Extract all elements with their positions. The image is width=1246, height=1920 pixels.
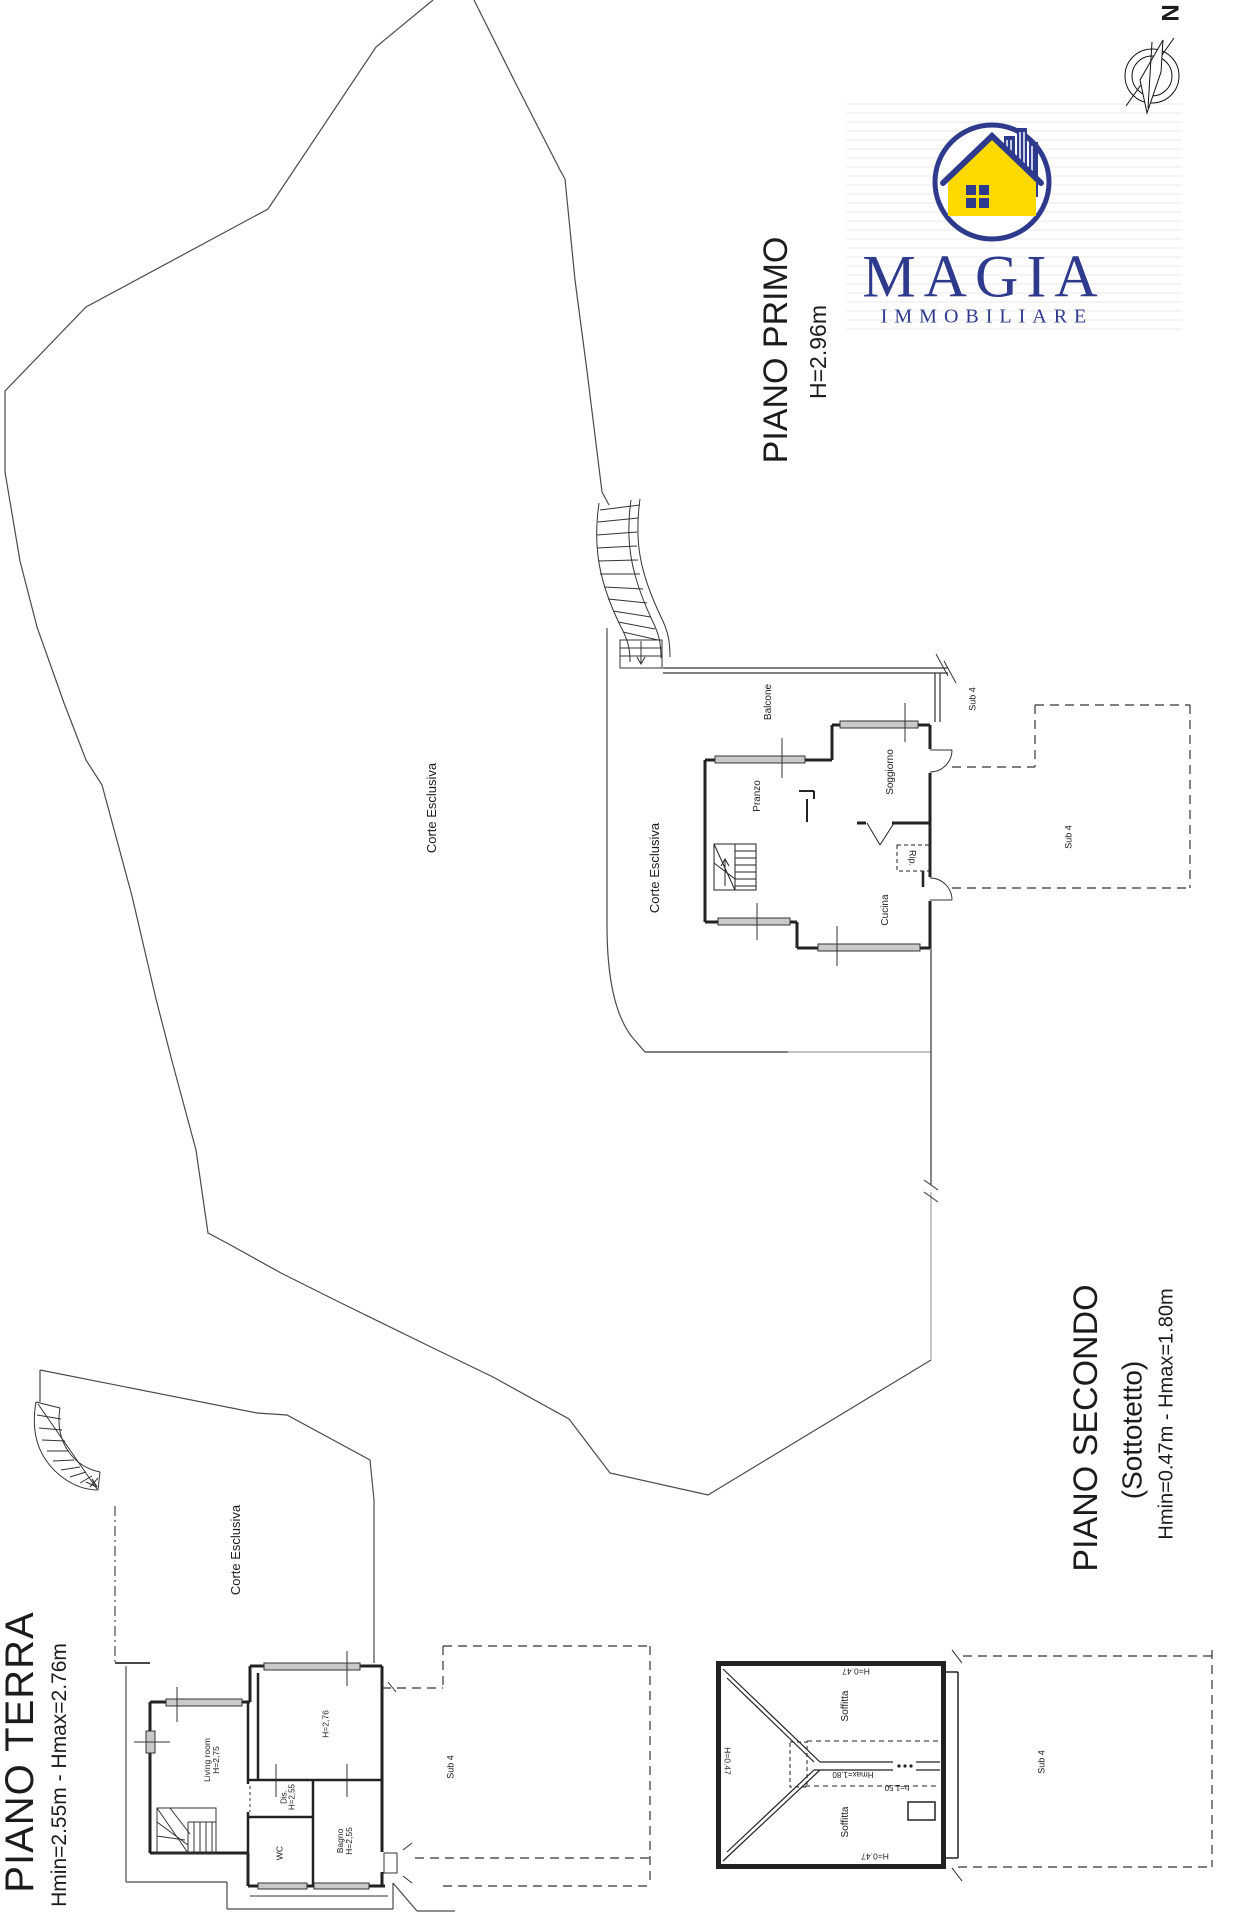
dis-label: Dis. H=2,55 xyxy=(281,1784,298,1810)
external-stair-primo xyxy=(597,499,670,668)
corte-esclusiva-label-2: Corte Esclusiva xyxy=(648,823,662,913)
h047-top-label: H=0.47 xyxy=(842,1667,870,1676)
terra-sub4-dashed xyxy=(382,1646,650,1886)
compass-icon xyxy=(1125,38,1179,113)
logo-subbrand: IMMOBILIARE xyxy=(881,307,1094,328)
bagno-height: H=2,55 xyxy=(344,1827,354,1855)
balcone-label: Balcone xyxy=(764,684,775,720)
big-room-height: H=2,76 xyxy=(322,1710,331,1738)
terra-interior xyxy=(248,1673,382,1886)
terra-title: PIANO TERRA xyxy=(0,1611,41,1892)
hmax-label: Hmax=1.80 xyxy=(832,1770,873,1778)
terra-winder-stair xyxy=(157,1808,216,1853)
floorplan-sheet: N MAGIA IMMOBILIARE PIANO PRIMO H=2.96m … xyxy=(0,0,1246,1920)
primo-interior xyxy=(714,791,930,890)
logo-brand: MAGIA xyxy=(862,246,1105,309)
secondo-house xyxy=(719,1650,963,1881)
living-room-label: Living room H=2,75 xyxy=(203,1738,221,1782)
soggiorno-label: Soggiorno xyxy=(886,749,897,795)
h047-bottom-label: H=0.47 xyxy=(861,1852,889,1861)
external-stair-terra xyxy=(34,1402,100,1490)
rip-label: Rip. xyxy=(907,850,916,866)
terra-windows xyxy=(134,1651,388,1896)
primo-windows xyxy=(715,703,920,966)
sub4-top-label: Sub 4 xyxy=(968,687,977,711)
bagno-label: Bagno H=2,55 xyxy=(336,1827,354,1855)
primo-sub4-dashed xyxy=(952,705,1190,888)
logo-emblem xyxy=(935,125,1049,239)
balcony-fence xyxy=(663,654,956,722)
secondo-height-note: Hmin=0.47m - Hmax=1.80m xyxy=(1157,1288,1178,1539)
corte-esclusiva-label-3: Corte Esclusiva xyxy=(229,1505,243,1595)
soffitta-bottom-label: Soffitta xyxy=(841,1807,852,1838)
pranzo-label: Pranzo xyxy=(753,780,764,812)
living-room-height: H=2,75 xyxy=(211,1746,221,1774)
h150-label: h=1.50 xyxy=(885,1783,910,1791)
secondo-title: PIANO SECONDO xyxy=(1069,1284,1105,1571)
cucina-label: Cucina xyxy=(881,894,892,925)
secondo-sub4-dashed xyxy=(958,1650,1212,1867)
primo-title: PIANO PRIMO xyxy=(759,237,795,464)
terra-height-note: Hmin=2.55m - Hmax=2.76m xyxy=(49,1643,71,1907)
sub4-right-label: Sub 4 xyxy=(1064,825,1073,849)
lot-boundary-primo xyxy=(5,0,938,1495)
primo-height-note: H=2.96m xyxy=(806,305,830,399)
dis-height: H=2,55 xyxy=(288,1784,297,1810)
secondo-subtitle: (Sottotetto) xyxy=(1117,1361,1146,1500)
terra-door-gap xyxy=(244,1784,252,1812)
wc-label: WC xyxy=(276,1846,285,1860)
terra-entry-steps xyxy=(384,1843,412,1883)
soffitta-top-label: Soffitta xyxy=(841,1691,852,1722)
secondo-sub4-label: Sub 4 xyxy=(1037,1750,1046,1774)
h047-left-label: H=0.47 xyxy=(723,1747,732,1775)
corte-esclusiva-label-1: Corte Esclusiva xyxy=(425,763,439,853)
north-label: N xyxy=(1158,4,1183,21)
terra-sub4-label: Sub 4 xyxy=(446,1755,455,1779)
